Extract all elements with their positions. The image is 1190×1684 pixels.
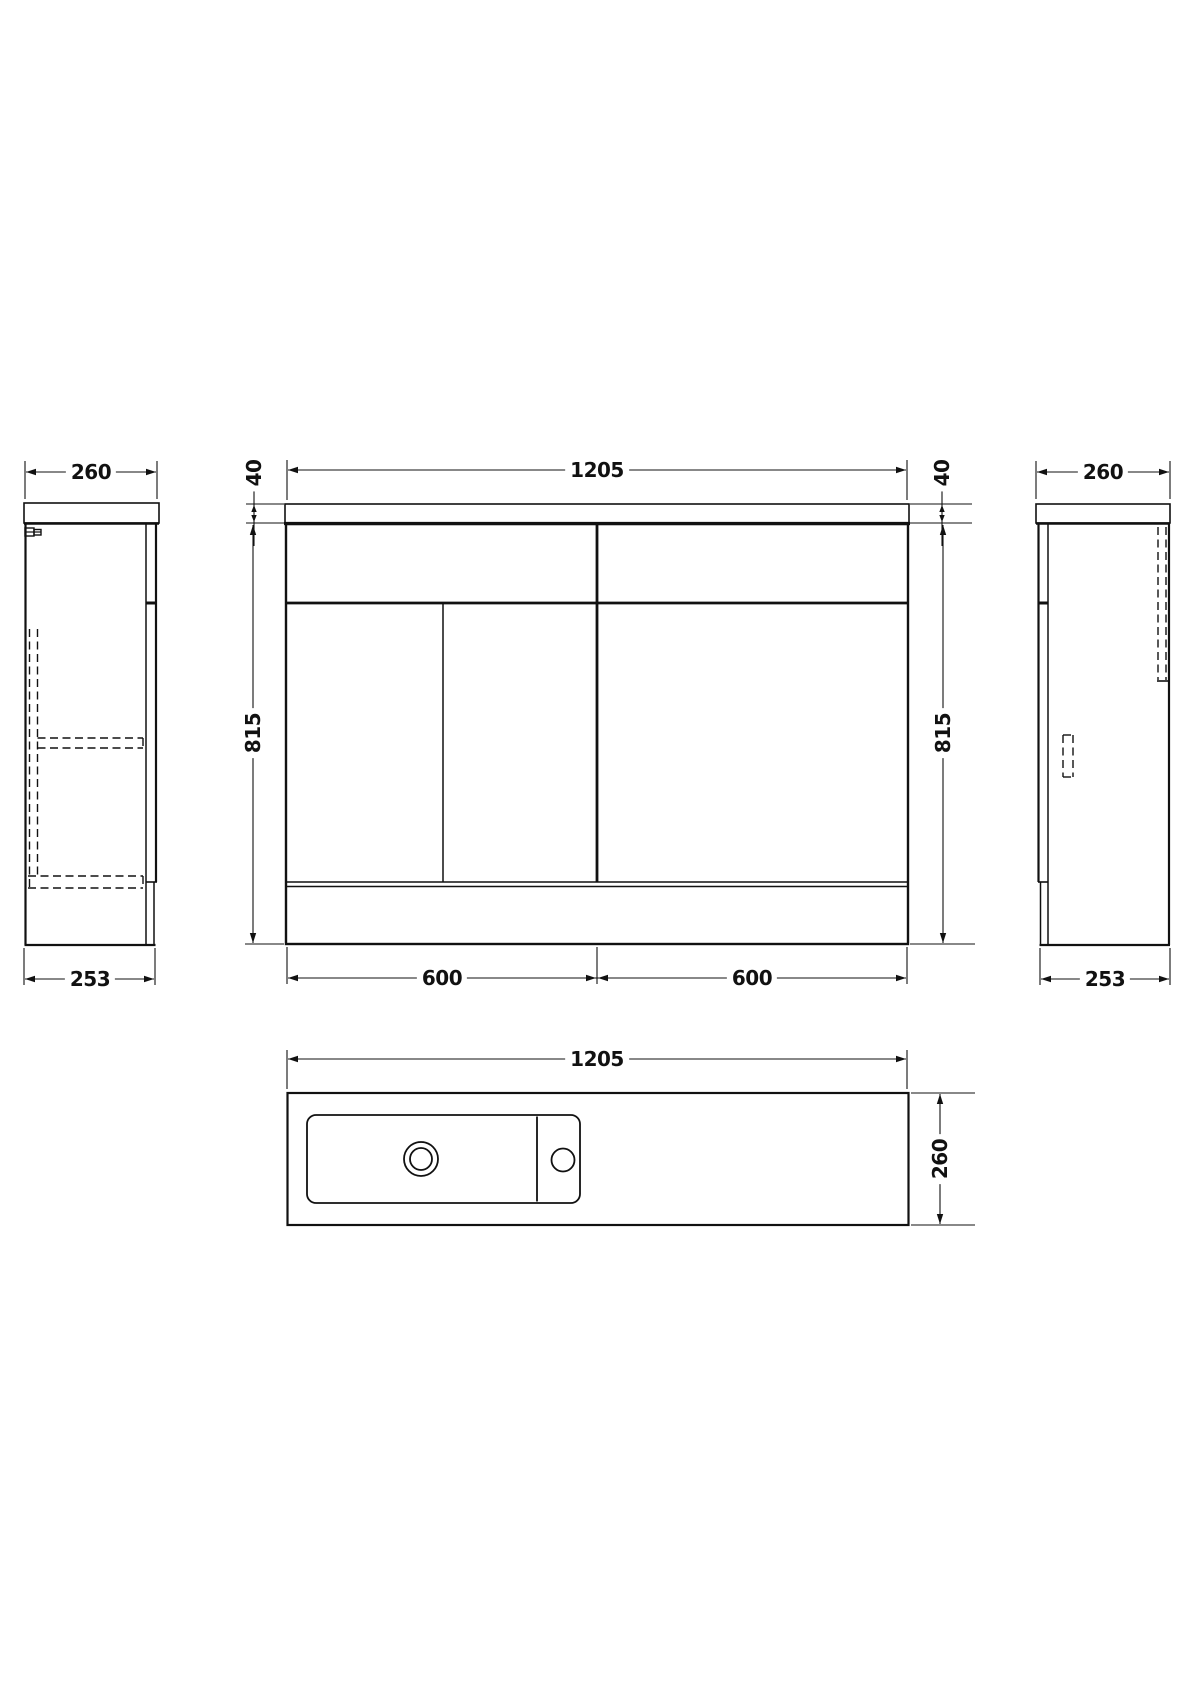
dim-worktop-thickness-right: 40	[931, 455, 953, 492]
ls-worktop-outline	[24, 503, 159, 523]
front-worktop-outline	[285, 504, 909, 523]
dim-left-side-depth-bottom: 253	[65, 968, 115, 990]
left-side-dimensions	[24, 461, 157, 985]
arrowhead	[586, 975, 596, 982]
arrowhead	[1159, 469, 1169, 476]
front-view-dimensions	[245, 460, 975, 984]
dim-plan-width: 1205	[565, 1048, 629, 1070]
plan-waste-inner-circle	[410, 1148, 432, 1170]
arrowhead	[1041, 976, 1051, 983]
dim-plan-depth: 260	[929, 1134, 951, 1184]
dim-front-width: 1205	[565, 459, 629, 481]
arrowhead	[939, 505, 944, 512]
arrowhead	[288, 1056, 298, 1063]
dim-height-left: 815	[242, 708, 264, 758]
dim-height-right: 815	[932, 708, 954, 758]
plan-worktop-outline	[288, 1093, 909, 1225]
plan-view	[288, 1093, 909, 1225]
arrowhead	[939, 515, 944, 522]
arrowhead	[940, 525, 946, 535]
front-view	[284, 504, 910, 944]
arrowhead	[1159, 976, 1169, 983]
arrowhead	[896, 467, 906, 474]
drawing-lines	[0, 0, 1190, 1684]
arrowhead	[251, 515, 256, 522]
plan-tap-hole-circle	[552, 1149, 575, 1172]
arrowhead	[26, 469, 36, 476]
arrowhead	[940, 933, 946, 943]
arrowhead	[1037, 469, 1047, 476]
arrowhead	[250, 525, 256, 535]
arrowhead	[937, 1094, 943, 1104]
arrowhead	[251, 505, 256, 512]
arrowhead	[144, 976, 154, 983]
arrowhead	[288, 975, 298, 982]
dim-left-side-depth-top: 260	[66, 461, 116, 483]
dim-left-unit-width: 600	[417, 967, 467, 989]
rs-worktop-outline	[1036, 504, 1170, 523]
ls-hidden-lines	[28, 629, 143, 888]
plan-dimensions	[287, 1050, 975, 1225]
dim-right-side-depth-bottom: 253	[1080, 968, 1130, 990]
drawing-canvas: 1205 40 40 815 815 600 600 260 253 260 2…	[0, 0, 1190, 1684]
arrowhead	[250, 933, 256, 943]
arrowhead	[146, 469, 156, 476]
dim-right-side-depth-top: 260	[1078, 461, 1128, 483]
plan-basin-outline	[307, 1115, 580, 1203]
right-side-dimensions	[1036, 461, 1170, 985]
arrowhead	[25, 976, 35, 983]
arrowhead	[937, 1214, 943, 1224]
right-side-view	[1036, 504, 1170, 945]
arrowhead	[598, 975, 608, 982]
rs-hidden-lines	[1063, 527, 1166, 777]
left-side-view	[24, 503, 159, 945]
arrowhead	[896, 975, 906, 982]
dim-worktop-thickness-left: 40	[243, 455, 265, 492]
dim-right-unit-width: 600	[727, 967, 777, 989]
arrowhead	[896, 1056, 906, 1063]
arrowhead	[288, 467, 298, 474]
